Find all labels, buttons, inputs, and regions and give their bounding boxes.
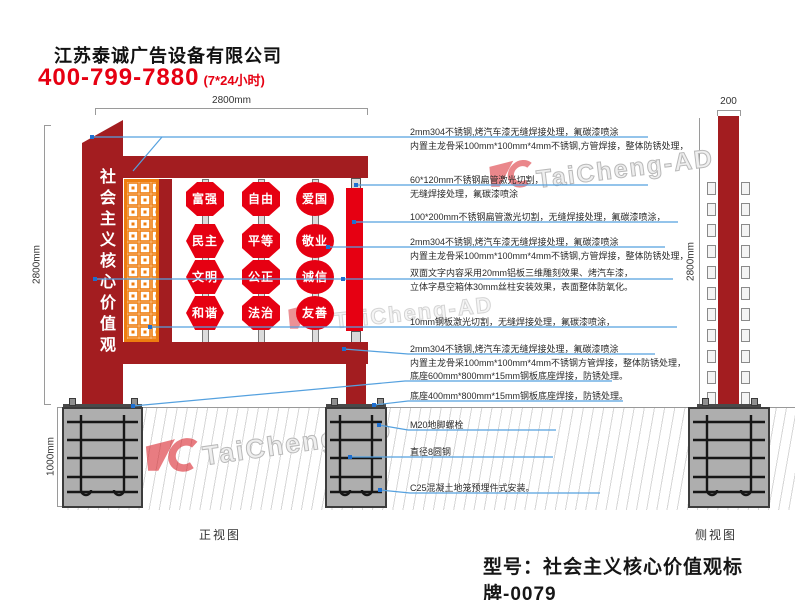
mounting-bracket [741, 329, 750, 342]
mounting-bracket [707, 350, 716, 363]
anchor-bolt [702, 398, 709, 406]
front-top-bar [123, 156, 368, 178]
annotation-line: 100*200mm不锈钢扁管激光切割，无缝焊接处理，氟碳漆喷涂， [410, 212, 666, 222]
value-badge: 爱国 [296, 182, 334, 216]
mounting-bracket [741, 203, 750, 216]
mounting-bracket [741, 182, 750, 195]
mounting-bracket [741, 350, 750, 363]
foundation-depth-dim-line [57, 407, 58, 507]
drawing-canvas: 江苏泰诚广告设备有限公司 400-799-7880(7*24小时) TaiChe… [0, 0, 800, 600]
front-height-label: 2800mm [32, 240, 43, 290]
mounting-bracket [741, 371, 750, 384]
service-hours: (7*24小时) [203, 73, 264, 88]
annotation-item: 直径8圆钢 [410, 446, 688, 458]
phone-line: 400-799-7880(7*24小时) [38, 64, 265, 92]
front-bottom-bar [123, 342, 368, 364]
annotation-item: 100*200mm不锈钢扁管激光切割，无缝焊接处理，氟碳漆喷涂， [410, 211, 688, 223]
mounting-bracket [741, 245, 750, 258]
lattice-panel [124, 179, 159, 342]
mounting-bracket [707, 329, 716, 342]
front-panel-vertical-text: 社会主义核心价值观 [97, 168, 113, 378]
mounting-bracket [707, 371, 716, 384]
annotation-item: 底座400mm*800mm*15mm钢板底座焊接，防锈处理。 [410, 390, 688, 402]
mounting-bracket [741, 266, 750, 279]
anchor-bolt [331, 398, 338, 406]
foundation-left [62, 407, 143, 508]
rebar-cage [327, 409, 385, 506]
annotation-line: 2mm304不锈钢,烤汽车漆无缝焊接处理，氟碳漆喷涂 [410, 344, 619, 354]
front-view-label: 正视图 [180, 526, 260, 543]
annotation-item: C25混凝土地笼预埋件式安装。 [410, 482, 688, 494]
annotation-item: M20地脚螺栓 [410, 419, 688, 431]
value-badge: 诚信 [296, 260, 334, 294]
annotation-line: 直径8圆钢 [410, 447, 451, 457]
side-view-label: 侧视图 [684, 526, 748, 543]
value-badge: 和谐 [186, 296, 224, 330]
anchor-bolt [131, 398, 138, 406]
value-badge: 民主 [186, 224, 224, 258]
annotation-line: 内置主龙骨采100mm*100mm*4mm不锈钢,方管焊接，整体防锈处理， [410, 250, 688, 262]
front-top-dim-tick-left [95, 108, 96, 115]
side-top-dim-line [717, 110, 741, 111]
annotation-line: 底座600mm*800mm*15mm钢板底座焊接，防锈处理。 [410, 371, 628, 381]
value-badge: 敬业 [296, 224, 334, 258]
foundation-side [688, 407, 770, 508]
annotation-line: 双面文字内容采用20mm铝板三维雕刻效果、烤汽车漆， [410, 268, 633, 278]
annotation-line: 立体字悬空箱体30mm丝柱安装效果，表面整体防氧化。 [410, 281, 688, 293]
annotation-item: 2mm304不锈钢,烤汽车漆无缝焊接处理，氟碳漆喷涂内置主龙骨采100mm*10… [410, 236, 688, 262]
front-inner-frame-strip [159, 179, 172, 342]
anchor-bolt [377, 398, 384, 406]
annotation-line: C25混凝土地笼预埋件式安装。 [410, 483, 535, 493]
front-top-dim-tick-right [367, 108, 368, 115]
front-right-strip [346, 188, 363, 331]
annotation-item: 2mm304不锈钢,烤汽车漆无缝焊接处理，氟碳漆喷涂内置主龙骨采100mm*10… [410, 126, 688, 152]
rebar-cage [64, 409, 141, 506]
mounting-bracket [707, 266, 716, 279]
rebar-cage [690, 409, 768, 506]
mounting-bracket [707, 203, 716, 216]
mounting-bracket [741, 308, 750, 321]
model-number: 型号：社会主义核心价值观标牌-0079 [483, 552, 800, 600]
side-height-dim-line [699, 118, 700, 405]
annotation-item: 底座600mm*800mm*15mm钢板底座焊接，防锈处理。 [410, 370, 688, 382]
annotation-line: 内置主龙骨采100mm*100mm*4mm不锈钢,方管焊接，整体防锈处理， [410, 140, 688, 152]
annotation-item: 10mm钢板激光切割，无缝焊接处理，氟碳漆喷涂， [410, 316, 688, 328]
front-height-tick-bottom [44, 404, 51, 405]
side-top-tick-right [740, 110, 741, 116]
anchor-bolt [751, 398, 758, 406]
mounting-bracket [707, 182, 716, 195]
anchor-bolt [69, 398, 76, 406]
front-height-dim-line [44, 125, 45, 405]
side-top-width-label: 200 [705, 96, 752, 107]
foundation-right [325, 407, 387, 508]
mounting-bracket [741, 224, 750, 237]
mounting-bracket [707, 287, 716, 300]
mounting-bracket [707, 308, 716, 321]
value-badge: 自由 [242, 182, 280, 216]
mounting-bracket [707, 245, 716, 258]
annotation-item: 2mm304不锈钢,烤汽车漆无缝焊接处理，氟碳漆喷涂内置主龙骨采100mm*10… [410, 343, 688, 369]
annotation-line: 60*120mm不锈钢扁管激光切割， [410, 175, 544, 185]
annotation-line: 内置主龙骨采100mm*100mm*4mm不锈钢方管焊接，整体防锈处理， [410, 357, 688, 369]
annotation-line: 2mm304不锈钢,烤汽车漆无缝焊接处理，氟碳漆喷涂 [410, 127, 619, 137]
annotation-item: 双面文字内容采用20mm铝板三维雕刻效果、烤汽车漆，立体字悬空箱体30mm丝柱安… [410, 267, 688, 293]
front-height-tick-top [44, 125, 51, 126]
annotation-item: 60*120mm不锈钢扁管激光切割，无缝焊接处理，氟碳漆喷涂 [410, 174, 688, 200]
annotation-line: 无缝焊接处理，氟碳漆喷涂 [410, 188, 688, 200]
value-badge: 公正 [242, 260, 280, 294]
front-top-width-label: 2800mm [95, 95, 368, 106]
mounting-bracket [741, 287, 750, 300]
value-badge: 富强 [186, 182, 224, 216]
annotation-line: 2mm304不锈钢,烤汽车漆无缝焊接处理，氟碳漆喷涂 [410, 237, 619, 247]
foundation-depth-label: 1000mm [46, 432, 57, 482]
phone-number: 400-799-7880 [38, 64, 199, 91]
annotation-line: 底座400mm*800mm*15mm钢板底座焊接，防锈处理。 [410, 391, 628, 401]
front-top-dim-line [95, 108, 368, 109]
annotation-line: M20地脚螺栓 [410, 420, 464, 430]
value-badge: 法治 [242, 296, 280, 330]
side-column [718, 116, 739, 404]
value-badge: 平等 [242, 224, 280, 258]
annotation-line: 10mm钢板激光切割，无缝焊接处理，氟碳漆喷涂， [410, 317, 615, 327]
mounting-bracket [707, 224, 716, 237]
value-badge: 文明 [186, 260, 224, 294]
front-right-leg [346, 364, 366, 404]
value-badge: 友善 [296, 296, 334, 330]
